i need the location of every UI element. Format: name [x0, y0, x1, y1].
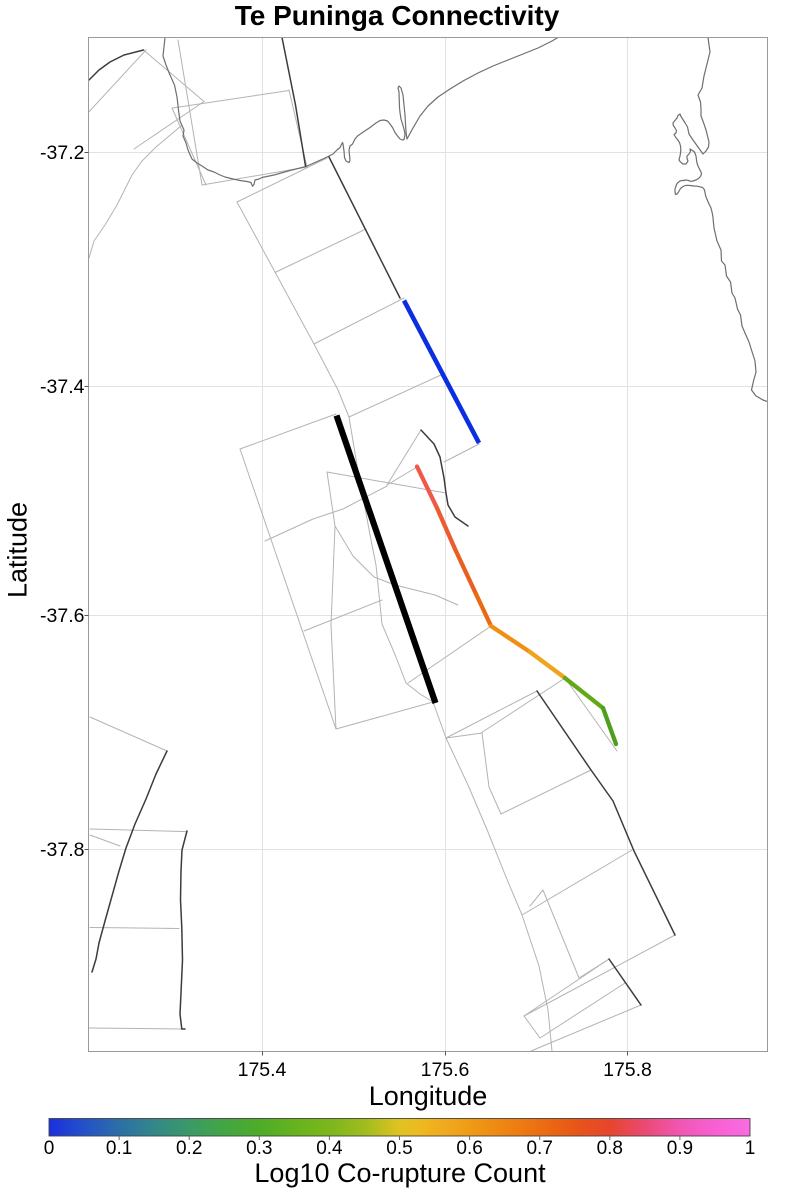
svg-text:0.9: 0.9: [667, 1138, 693, 1159]
svg-text:Longitude: Longitude: [369, 1081, 488, 1111]
svg-text:0.6: 0.6: [456, 1138, 482, 1159]
svg-text:0.3: 0.3: [246, 1138, 272, 1159]
svg-text:0.7: 0.7: [526, 1138, 552, 1159]
svg-text:0.5: 0.5: [386, 1138, 412, 1159]
svg-text:0.2: 0.2: [176, 1138, 202, 1159]
svg-text:1: 1: [745, 1138, 756, 1159]
svg-text:Te Puninga Connectivity: Te Puninga Connectivity: [235, 0, 560, 31]
svg-text:-37.6: -37.6: [40, 605, 84, 627]
svg-text:Log10 Co-rupture Count: Log10 Co-rupture Count: [254, 1158, 546, 1188]
svg-text:175.6: 175.6: [421, 1059, 470, 1081]
svg-text:175.8: 175.8: [603, 1059, 652, 1081]
svg-text:0.1: 0.1: [106, 1138, 132, 1159]
svg-text:-37.2: -37.2: [40, 142, 84, 164]
svg-text:-37.8: -37.8: [40, 839, 84, 861]
svg-text:0.8: 0.8: [597, 1138, 623, 1159]
svg-text:0.4: 0.4: [316, 1138, 343, 1159]
svg-text:-37.4: -37.4: [40, 376, 85, 398]
svg-text:Latitude: Latitude: [3, 502, 33, 598]
svg-text:175.4: 175.4: [238, 1059, 287, 1081]
svg-text:0: 0: [44, 1138, 55, 1159]
